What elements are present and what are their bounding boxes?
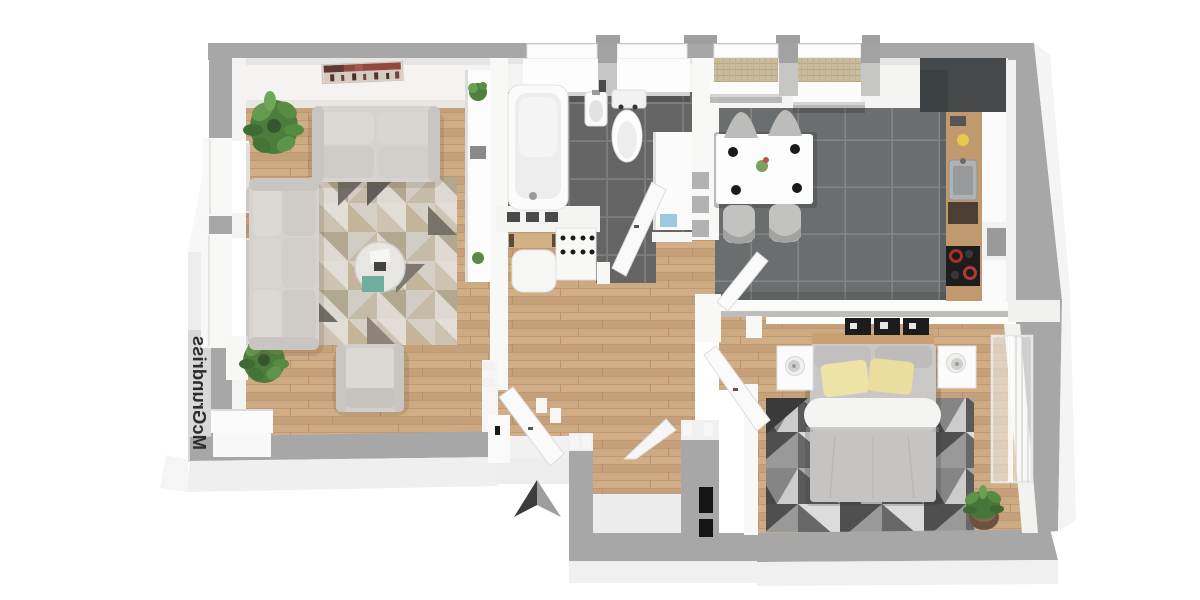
svg-text:McGrundriss: McGrundriss [189, 336, 210, 450]
